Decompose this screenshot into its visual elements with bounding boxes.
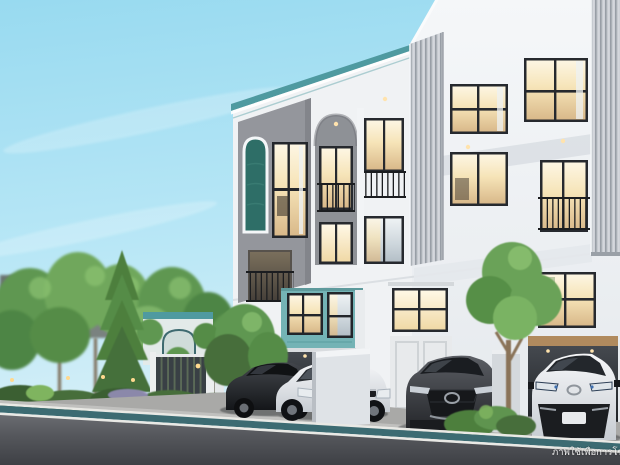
- downlight: [334, 122, 338, 126]
- window-g1: [287, 293, 323, 335]
- balcony-railing: [538, 198, 590, 230]
- window-a3: [272, 142, 308, 238]
- render-canvas: [0, 0, 620, 465]
- louver-panel-2: [591, 0, 620, 256]
- downlight: [466, 145, 470, 149]
- balcony-railing: [317, 184, 355, 212]
- unit-b-facade: [315, 97, 406, 268]
- window-b2-right: [364, 216, 404, 264]
- headlight: [376, 389, 390, 398]
- balcony-railing: [362, 172, 406, 198]
- window-c2-right: [538, 160, 590, 232]
- license-plate: [562, 412, 586, 424]
- window-garage: [392, 288, 448, 332]
- window-c3-right: [524, 58, 588, 122]
- window-g2: [327, 292, 353, 338]
- downlight: [561, 139, 565, 143]
- gate-lamp: [196, 364, 201, 369]
- window-c2-left: [450, 152, 508, 206]
- downlight: [383, 97, 387, 101]
- louver-panel-1: [410, 32, 443, 266]
- entry-door-trim: [355, 290, 365, 350]
- carport-soffit-wood: [526, 336, 618, 346]
- partition-wall-a: [312, 348, 370, 428]
- teal-ground-facade: [281, 288, 365, 350]
- window-b3-right: [362, 118, 406, 198]
- window-b2: [319, 222, 353, 264]
- mirror: [614, 380, 620, 387]
- unit-a-facade: [238, 98, 311, 303]
- window-b3-arch: [317, 146, 355, 212]
- window-c3-left: [450, 84, 508, 134]
- architectural-render: ภาพใช้เพื่อการโฆษณา: [0, 0, 620, 465]
- mirror: [528, 382, 534, 389]
